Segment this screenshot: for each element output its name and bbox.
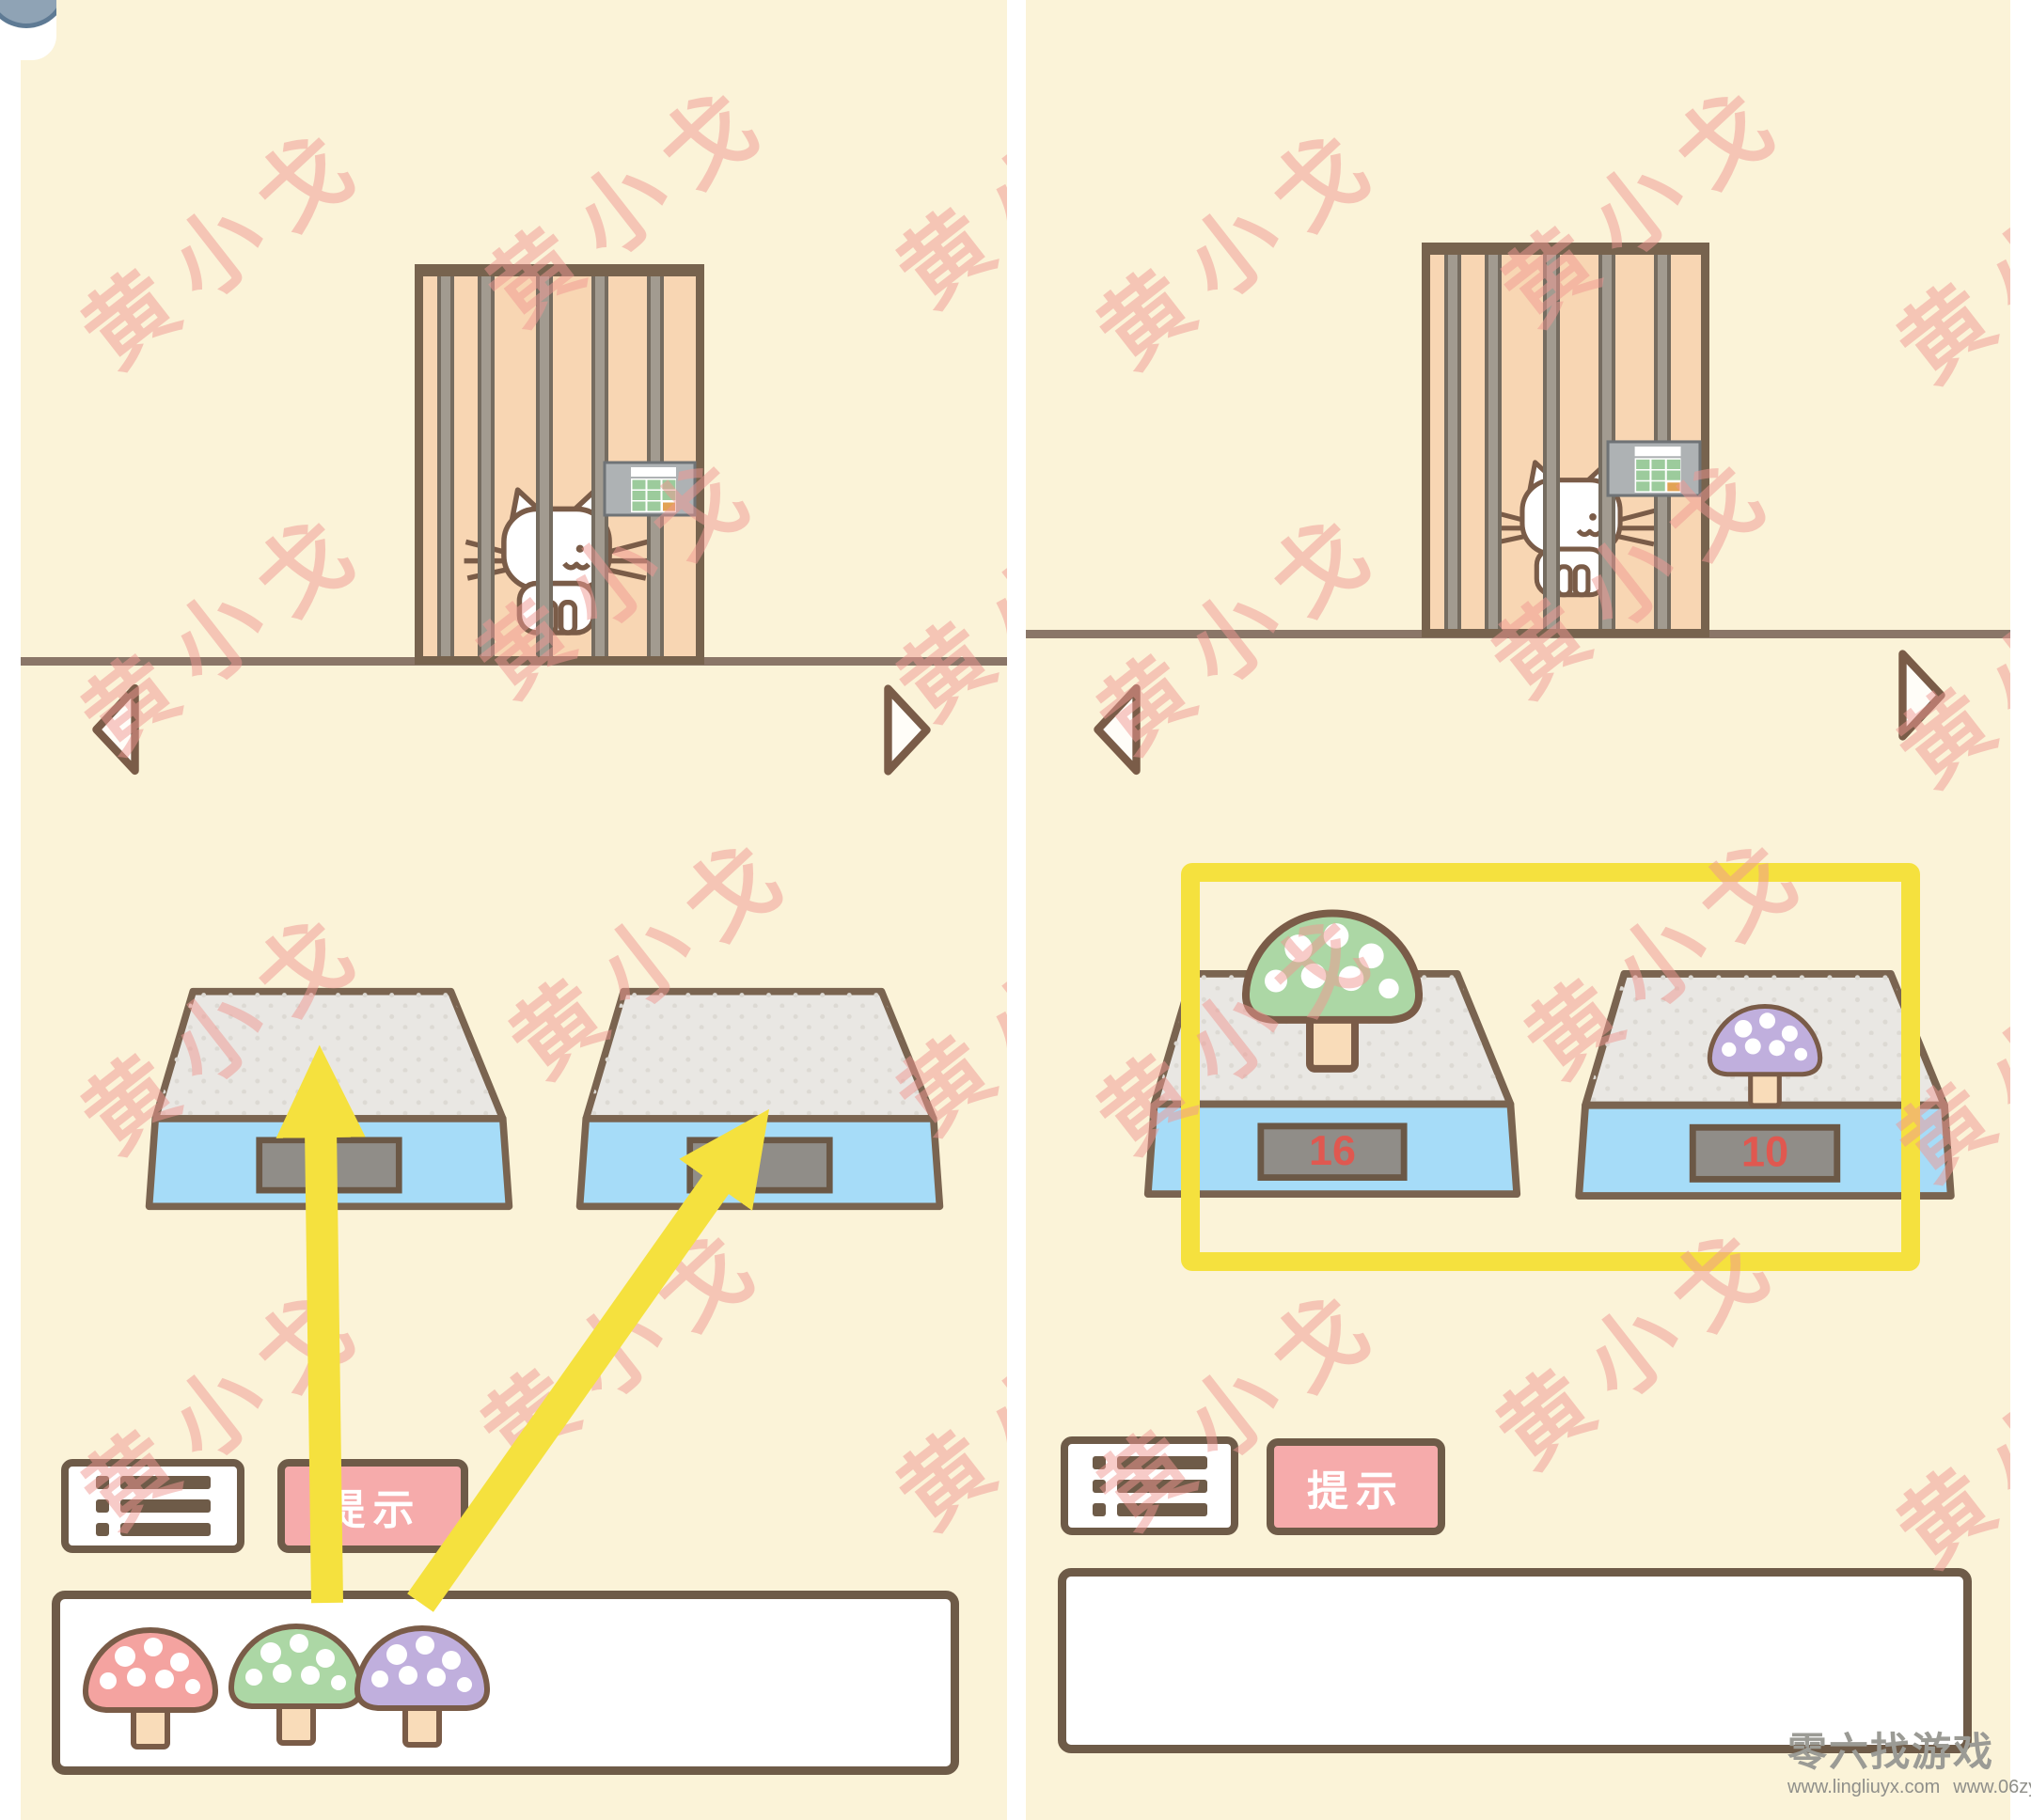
hint-button[interactable]: 提示 (277, 1459, 468, 1553)
watermark: 黄小戈 (1867, 102, 2010, 406)
purple-mushroom-on-scale[interactable] (1705, 998, 1825, 1110)
inventory-green-mushroom[interactable] (226, 1617, 367, 1749)
prev-level-arrow[interactable] (89, 680, 142, 779)
site-url-2: www.06zyx.com (1953, 1777, 2031, 1798)
watermark: 黄小戈 (1467, 1187, 1806, 1492)
inventory-bar (1058, 1568, 1972, 1753)
keypad-lock[interactable] (603, 461, 697, 517)
green-mushroom-on-scale[interactable] (1238, 901, 1426, 1076)
next-level-arrow[interactable] (881, 682, 934, 778)
scale-display (260, 1140, 400, 1190)
watermark: 黄小戈 (52, 87, 391, 392)
cage-bar (1543, 255, 1560, 629)
hint-button-label: 提示 (324, 1476, 422, 1536)
watermark: 黄小戈 (1067, 87, 1407, 392)
keypad-lock[interactable] (1606, 439, 1702, 498)
menu-button[interactable] (61, 1459, 244, 1553)
weighing-scale-left[interactable] (141, 986, 517, 1216)
cage-bar (536, 276, 553, 656)
watermark: 黄小戈 (451, 1187, 791, 1492)
inventory-purple-mushroom[interactable] (352, 1619, 493, 1750)
hint-button[interactable]: 提示 (1267, 1438, 1445, 1535)
list-icon (96, 1476, 211, 1536)
cage-bar (478, 276, 495, 656)
menu-button[interactable] (1061, 1436, 1238, 1535)
cage-bar (437, 276, 454, 656)
site-url-1: www.lingliuyx.com (1787, 1777, 1940, 1798)
keypad-enter-key[interactable] (1667, 482, 1679, 491)
cat-cage (415, 264, 704, 665)
weighing-scale-right[interactable] (572, 986, 948, 1216)
app-icon-corner (0, 0, 56, 60)
site-logo: 零六找游戏 www.lingliuyx.com www.06zyx.com (1780, 1728, 2031, 1817)
cage-bar (1485, 255, 1502, 629)
watermark: 黄小戈 (1867, 1286, 2010, 1591)
keypad-enter-key[interactable] (663, 503, 675, 511)
scale-value: 10 (1741, 1128, 1788, 1176)
inventory-pink-mushroom[interactable] (80, 1621, 221, 1752)
watermark: 黄小戈 (867, 1248, 1007, 1553)
app-icon (0, 0, 56, 28)
right-screenshot-panel: 黄小戈 黄小戈 黄小戈 黄小戈 黄小戈 黄小戈 黄小戈 黄小戈 黄小戈 黄小戈 … (1026, 0, 2010, 1820)
cage-bar (1444, 255, 1461, 629)
scale-value: 16 (1309, 1126, 1356, 1174)
scale-display (690, 1140, 830, 1190)
hint-button-label: 提示 (1307, 1457, 1405, 1517)
watermark: 黄小戈 (867, 26, 1007, 331)
prev-level-arrow[interactable] (1091, 680, 1143, 779)
next-level-arrow[interactable] (1896, 647, 1948, 744)
cat-cage (1422, 243, 1709, 637)
left-screenshot-panel: 黄小戈 黄小戈 黄小戈 黄小戈 黄小戈 黄小戈 黄小戈 黄小戈 黄小戈 黄小戈 … (21, 0, 1007, 1820)
list-icon (1093, 1456, 1207, 1516)
site-name: 零六找游戏 (1787, 1728, 2031, 1777)
